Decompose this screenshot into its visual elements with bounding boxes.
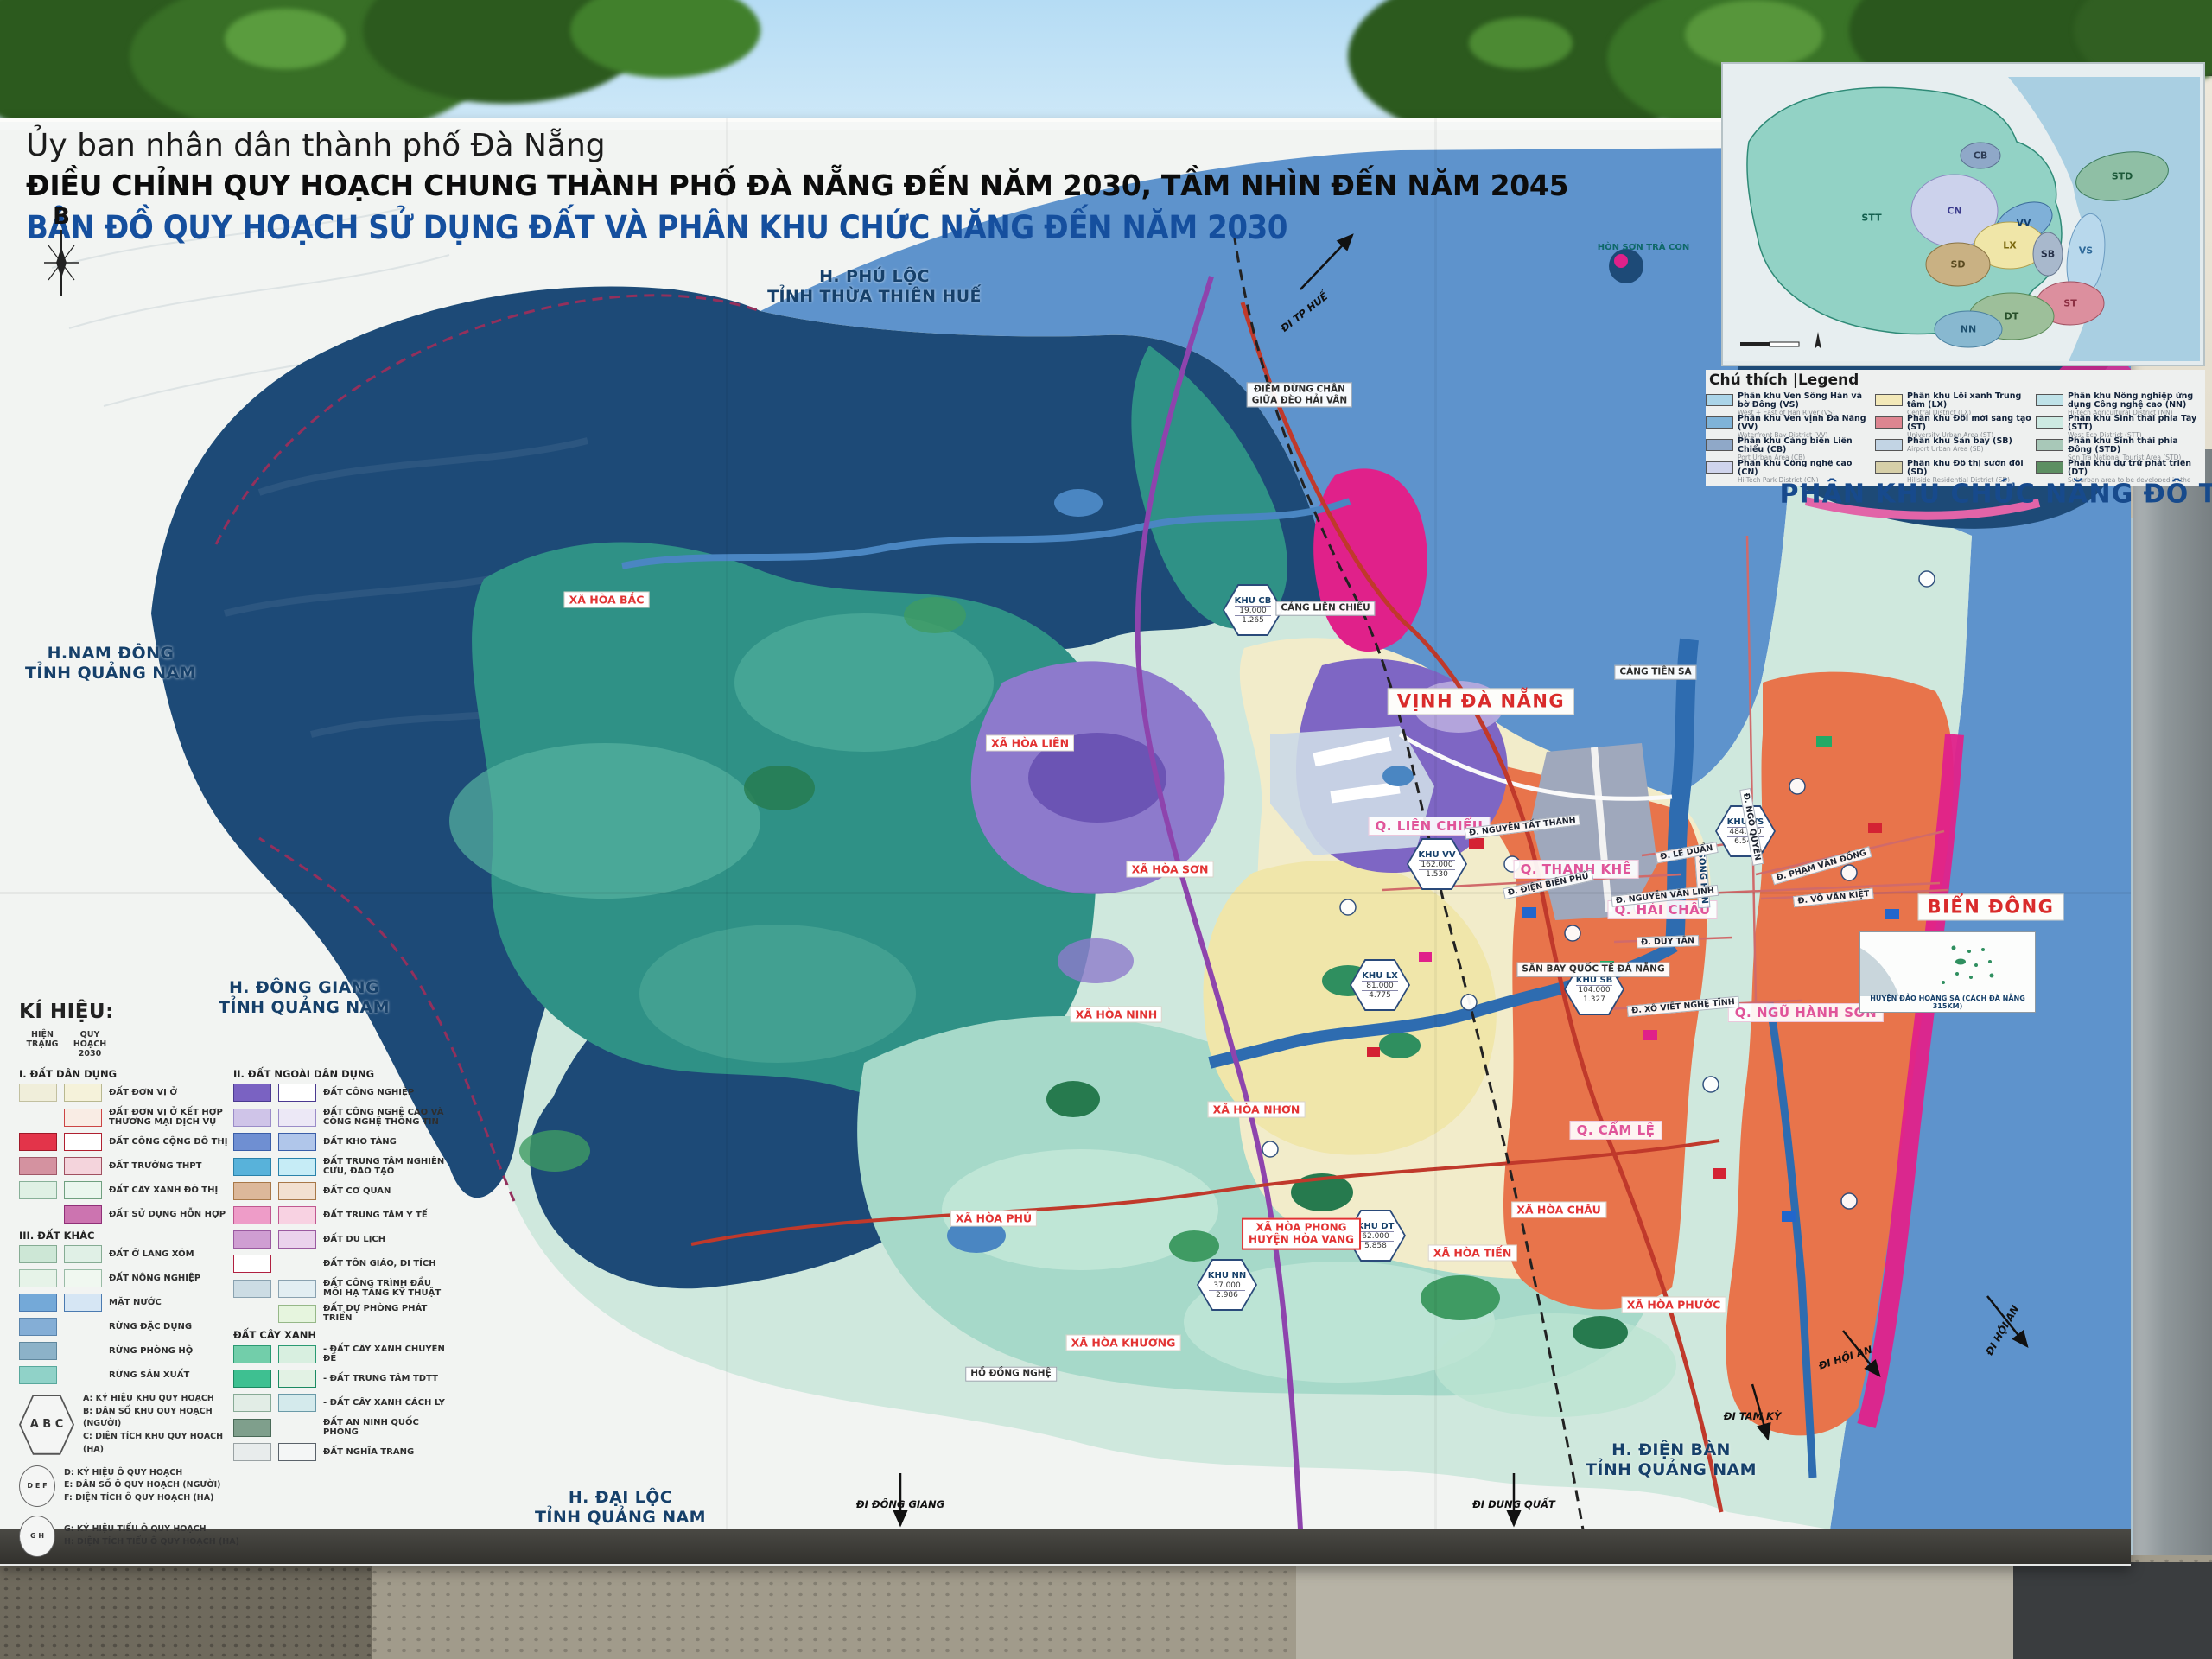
legend-row: ĐẤT DU LỊCH xyxy=(233,1230,503,1249)
swatch-existing xyxy=(233,1084,271,1102)
legend-row-label: ĐẤT ĐƠN VỊ Ở xyxy=(109,1088,238,1097)
green-patch xyxy=(519,1130,590,1172)
billboard-header: Ủy ban nhân dân thành phố Đà Nẵng ĐIỀU C… xyxy=(26,128,1568,246)
note-o-text: D: KÝ HIỆU Ô QUY HOẠCH E: DÂN SỐ Ô QUY H… xyxy=(64,1467,221,1505)
legend-row: ĐẤT AN NINH QUỐC PHÒNG xyxy=(233,1418,503,1437)
zone-area: 2.986 xyxy=(1209,1290,1245,1300)
legend-row: ĐẤT ĐƠN VỊ Ở KẾT HỢP THƯƠNG MẠI DỊCH VỤ xyxy=(19,1108,242,1127)
billboard-frame-bottom xyxy=(0,1529,2131,1564)
map-label: ĐIỂM DỪNG CHÂN GIỮA ĐÈO HẢI VÂN xyxy=(1247,382,1352,407)
legend-row-label: ĐẤT NGHĨA TRANG xyxy=(323,1447,453,1457)
legend-row: ĐẤT CÂY XANH ĐÔ THỊ xyxy=(19,1181,242,1199)
zoning-legend-label: Phân khu Đổi mới sáng tạo (ST) xyxy=(1907,415,2036,432)
legend-row: ĐẤT Ở LÀNG XÓM xyxy=(19,1245,242,1263)
hexagon-symbol: A B C xyxy=(19,1395,74,1455)
swatch-existing xyxy=(19,1269,57,1287)
section1-title: I. ĐẤT DÂN DỤNG xyxy=(19,1068,242,1080)
greenery-title: ĐẤT CÂY XANH xyxy=(233,1329,503,1341)
tree-foliage xyxy=(1469,17,1573,69)
zoning-legend-swatch xyxy=(1706,439,1733,451)
inset-region-code: ST xyxy=(2063,298,2076,309)
concrete-post xyxy=(2133,449,2212,1564)
inset-region-code: NN xyxy=(1961,324,1976,335)
teal-patch xyxy=(639,925,916,1063)
legend-row-label: ĐẤT CÔNG CỘNG ĐÔ THỊ xyxy=(109,1137,238,1147)
swatch-existing xyxy=(233,1230,271,1249)
compass-north: B xyxy=(38,204,85,299)
photo-of-planning-billboard: Ủy ban nhân dân thành phố Đà Nẵng ĐIỀU C… xyxy=(0,0,2212,1659)
legend-row: ĐẤT ĐƠN VỊ Ở xyxy=(19,1084,242,1102)
zone-population: 162.000 xyxy=(1419,860,1455,869)
legend-row-label: MẶT NƯỚC xyxy=(109,1298,238,1307)
map-label: XÃ HÒA BẮC xyxy=(564,592,650,608)
zone-population: 104.000 xyxy=(1576,985,1612,995)
map-label: H. PHÚ LỘC TỈNH THỪA THIÊN HUẾ xyxy=(767,267,982,307)
legend-row: ĐẤT NGHĨA TRANG xyxy=(233,1443,503,1461)
inset-region-code: STD xyxy=(2112,171,2133,182)
panel-seam xyxy=(726,118,728,1531)
green-patch xyxy=(904,597,966,633)
swatch-planned xyxy=(64,1084,102,1102)
greenery-rows: - ĐẤT CÂY XANH CHUYÊN ĐỀ - ĐẤT TRUNG TÂM… xyxy=(233,1344,503,1461)
plain-patch xyxy=(1434,1313,1676,1417)
green-patch xyxy=(744,766,815,810)
inset-region-code: STT xyxy=(1861,213,1881,224)
legend-row: ĐẤT CÔNG NGHIỆP xyxy=(233,1084,503,1102)
zoning-legend: Chú thích |Legend Phân khu Ven Sông Hàn … xyxy=(1706,370,2205,486)
legend-row-label: ĐẤT CÔNG TRÌNH ĐẦU MỐI HẠ TẦNG KỸ THUẬT xyxy=(323,1279,453,1298)
hoangsa-caption: HUYỆN ĐẢO HOÀNG SA (CÁCH ĐÀ NẴNG 315KM) xyxy=(1860,995,2035,1010)
legend-row-label: ĐẤT KHO TÀNG xyxy=(323,1137,453,1147)
section2-rows: ĐẤT CÔNG NGHIỆP ĐẤT CÔNG NGHỆ CAO VÀ CÔN… xyxy=(233,1084,503,1323)
legend-row-label: ĐẤT CƠ QUAN xyxy=(323,1186,453,1196)
inset-region-code: SD xyxy=(1950,259,1965,270)
inset-region-code: LX xyxy=(2003,240,2017,251)
swatch-planned xyxy=(278,1158,316,1176)
zoning-legend-item: Phân khu Sân bay (SB) Airport Urban Area… xyxy=(1875,437,2036,460)
zoning-legend-swatch xyxy=(1706,394,1733,406)
swatch-planned xyxy=(278,1305,316,1323)
note-khu-text: A: KÝ HIỆU KHU QUY HOẠCH B: DÂN SỐ KHU Q… xyxy=(83,1393,242,1457)
legend-row: RỪNG PHÒNG HỘ xyxy=(19,1342,242,1360)
zone-hexagon-inner: KHU NN 37.000 2.986 xyxy=(1198,1261,1255,1309)
swatch-planned xyxy=(278,1084,316,1102)
inset-region-code: SB xyxy=(2041,249,2055,260)
circle-symbol: G H xyxy=(19,1516,55,1557)
zoning-legend-swatch xyxy=(2036,439,2063,451)
legend-row-label: - ĐẤT CÂY XANH CHUYÊN ĐỀ xyxy=(323,1344,453,1363)
swatch-existing xyxy=(233,1419,271,1437)
ground-gravel-dark xyxy=(0,1555,372,1659)
map-label: HỒ ĐỒNG NGHỆ xyxy=(965,1367,1057,1382)
swatch-planned xyxy=(64,1205,102,1224)
legend-row-label: ĐẤT CÔNG NGHỆ CAO VÀ CÔNG NGHỆ THÔNG TIN xyxy=(323,1108,453,1127)
legend-row-label: ĐẤT AN NINH QUỐC PHÒNG xyxy=(323,1418,453,1437)
circle-symbol: D E F xyxy=(19,1465,55,1507)
teal-patch xyxy=(449,743,760,899)
legend-row-label: ĐẤT CÔNG NGHIỆP xyxy=(323,1088,453,1097)
map-label: CẢNG TIÊN SA xyxy=(1614,665,1696,680)
inset-scalebar xyxy=(1770,342,1799,346)
zoning-legend-label: Phân khu Sinh thái phía Đông (STD) xyxy=(2068,437,2205,454)
legend-row: ĐẤT NÔNG NGHIỆP xyxy=(19,1269,242,1287)
swatch-existing xyxy=(19,1181,57,1199)
swatch-existing xyxy=(233,1370,271,1388)
swatch-existing xyxy=(19,1342,57,1360)
map-label: Đ. DUY TÂN xyxy=(1637,935,1699,949)
map-label: H.NAM ĐÔNG TỈNH QUẢNG NAM xyxy=(25,644,196,683)
zoning-legend-swatch xyxy=(2036,416,2063,429)
hoangsa-artwork xyxy=(1860,932,2033,996)
zoning-legend-item: Phân khu Ven vịnh Đà Nẵng (VV) Waterfron… xyxy=(1706,415,1875,437)
legend-row-label: ĐẤT TÔN GIÁO, DI TÍCH xyxy=(323,1259,453,1268)
swatch-planned xyxy=(278,1345,316,1363)
legend-row-label: - ĐẤT TRUNG TÂM TDTT xyxy=(323,1374,453,1383)
swatch-existing xyxy=(233,1109,271,1127)
compass-star-icon xyxy=(38,230,85,296)
zoning-legend-swatch xyxy=(1875,394,1903,406)
zone-population: 37.000 xyxy=(1209,1281,1245,1290)
legend-row: - ĐẤT CÂY XANH CÁCH LY xyxy=(233,1394,503,1412)
zoning-legend-item: Phân khu Cảng biển Liên Chiểu (CB) Port … xyxy=(1706,437,1875,460)
swatch-planned xyxy=(278,1370,316,1388)
tree-foliage xyxy=(225,9,346,69)
compass-letter: B xyxy=(38,204,85,230)
teal-patch xyxy=(734,613,994,752)
functional-zones-caption: PHÂN KHU CHỨC NĂNG ĐÔ THỊ xyxy=(1780,480,2212,510)
inset-region-code: VS xyxy=(2079,245,2093,257)
map-label: XÃ HÒA PHÚ xyxy=(950,1211,1037,1227)
inset-region-code: CN xyxy=(1947,206,1961,217)
legend-row: MẶT NƯỚC xyxy=(19,1294,242,1312)
zoning-legend-swatch xyxy=(1706,461,1733,474)
map-label: ĐI ĐÔNG GIANG xyxy=(856,1499,944,1511)
legend-row-label: ĐẤT Ở LÀNG XÓM xyxy=(109,1249,238,1259)
section3-rows: ĐẤT Ở LÀNG XÓM ĐẤT NÔNG NGHIỆP MẶT NƯỚC xyxy=(19,1245,242,1384)
map-label: XÃ HÒA SƠN xyxy=(1127,861,1214,878)
zone-area: 4.775 xyxy=(1362,990,1398,1000)
inset-scalebar xyxy=(1740,342,1770,346)
swatch-existing xyxy=(19,1318,57,1336)
map-label: XÃ HÒA KHƯƠNG xyxy=(1066,1335,1181,1351)
legend-row: ĐẤT TRƯỜNG THPT xyxy=(19,1157,242,1175)
zone-area: 1.530 xyxy=(1419,869,1455,879)
zone-population: 62.000 xyxy=(1357,1231,1394,1241)
zoning-legend-label: Phân khu Ven Sông Hàn và bờ Đông (VS) xyxy=(1738,392,1875,410)
section1-rows: ĐẤT ĐƠN VỊ Ở ĐẤT ĐƠN VỊ Ở KẾT HỢP THƯƠNG… xyxy=(19,1084,242,1224)
col-planned: QUY HOẠCH 2030 xyxy=(62,1030,118,1058)
zoning-legend-item: Phân khu Sinh thái phía Đông (STD) Son T… xyxy=(2036,437,2205,460)
map-label: XÃ HÒA PHƯỚC xyxy=(1622,1297,1726,1313)
note-khu: A B C A: KÝ HIỆU KHU QUY HOẠCH B: DÂN SỐ… xyxy=(19,1393,242,1457)
legend-row: ĐẤT SỬ DỤNG HỖN HỢP xyxy=(19,1205,242,1224)
swatch-planned xyxy=(64,1133,102,1151)
zoning-legend-label: Phân khu Đô thị sườn đồi (SD) xyxy=(1907,460,2036,477)
swatch-planned xyxy=(278,1109,316,1127)
swatch-planned xyxy=(64,1269,102,1287)
map-label: XÃ HÒA TIẾN xyxy=(1428,1245,1517,1262)
bautram-lake xyxy=(1382,766,1414,786)
map-label: XÃ HÒA PHONG HUYỆN HÒA VANG xyxy=(1242,1218,1361,1250)
legend-row: - ĐẤT CÂY XANH CHUYÊN ĐỀ xyxy=(233,1344,503,1363)
legend-row: - ĐẤT TRUNG TÂM TDTT xyxy=(233,1370,503,1388)
zoning-legend-label: Phân khu Ven vịnh Đà Nẵng (VV) xyxy=(1738,415,1875,432)
legend-row-label: - ĐẤT CÂY XANH CÁCH LY xyxy=(323,1398,453,1408)
inset-region-code: CB xyxy=(1974,150,1987,162)
legend-row-label: RỪNG PHÒNG HỘ xyxy=(109,1346,238,1356)
zone-area: 1.327 xyxy=(1576,995,1612,1004)
legend-row: ĐẤT CÔNG TRÌNH ĐẦU MỐI HẠ TẦNG KỸ THUẬT xyxy=(233,1279,503,1298)
zone-hexagon-inner: KHU CB 19.000 1.265 xyxy=(1224,586,1281,634)
map-label: VỊNH ĐÀ NẴNG xyxy=(1388,688,1574,715)
zone-area: 5.858 xyxy=(1357,1241,1394,1250)
map-label: XÃ HÒA CHÂU xyxy=(1511,1202,1606,1218)
zoning-legend-swatch xyxy=(1875,461,1903,474)
landuse-col1: I. ĐẤT DÂN DỤNG ĐẤT ĐƠN VỊ Ở ĐẤT ĐƠN VỊ … xyxy=(19,1063,242,1557)
legend-row: RỪNG SẢN XUẤT xyxy=(19,1366,242,1384)
zoning-legend-swatch xyxy=(1875,439,1903,451)
legend-row: ĐẤT TRUNG TÂM NGHIÊN CỨU, ĐÀO TẠO xyxy=(233,1157,503,1176)
map-label: ĐI DUNG QUẤT xyxy=(1472,1499,1555,1511)
swatch-planned xyxy=(278,1230,316,1249)
legend-row-label: ĐẤT DỰ PHÒNG PHÁT TRIỂN xyxy=(323,1304,453,1323)
legend-row: ĐẤT TÔN GIÁO, DI TÍCH xyxy=(233,1255,503,1273)
section2-title: II. ĐẤT NGOÀI DÂN DỤNG xyxy=(233,1068,503,1080)
inset-region-code: VV xyxy=(2016,218,2031,229)
hoangsa-inset: HUYỆN ĐẢO HOÀNG SA (CÁCH ĐÀ NẴNG 315KM) xyxy=(1859,931,2036,1013)
legend-row: ĐẤT CƠ QUAN xyxy=(233,1182,503,1200)
zoning-legend-item: Phân khu Đổi mới sáng tạo (ST) Universit… xyxy=(1875,415,2036,437)
purple-patch xyxy=(1058,938,1134,983)
map-label: XÃ HÒA LIÊN xyxy=(986,735,1074,752)
zoning-legend-item: Phân khu Lõi xanh Trung tâm (LX) Central… xyxy=(1875,392,2036,415)
legend-row: ĐẤT CÔNG NGHỆ CAO VÀ CÔNG NGHỆ THÔNG TIN xyxy=(233,1108,503,1127)
map-label: SÂN BAY QUỐC TẾ ĐÀ NẴNG xyxy=(1516,963,1669,977)
zoning-legend-label: Phân khu Công nghệ cao (CN) xyxy=(1738,460,1875,477)
map-label: CẢNG LIÊN CHIỂU xyxy=(1275,601,1375,616)
green-patch xyxy=(1421,1275,1500,1320)
swatch-planned xyxy=(278,1443,316,1461)
legend-row-label: ĐẤT SỬ DỤNG HỖN HỢP xyxy=(109,1210,238,1219)
zoning-legend-swatch xyxy=(1706,416,1733,429)
map-label: XÃ HÒA NINH xyxy=(1071,1007,1162,1023)
swatch-planned xyxy=(278,1182,316,1200)
lienchieu-magenta xyxy=(1313,468,1427,652)
col-existing: HIỆN TRẠNG xyxy=(21,1030,64,1049)
swatch-existing xyxy=(233,1394,271,1412)
green-patch xyxy=(1169,1230,1219,1262)
swatch-planned xyxy=(278,1133,316,1151)
legend-row-label: RỪNG ĐẶC DỤNG xyxy=(109,1322,238,1332)
swatch-planned xyxy=(64,1109,102,1127)
issuing-authority: Ủy ban nhân dân thành phố Đà Nẵng xyxy=(26,128,1568,163)
zoning-inset-map: STTCNCBVVLXSDSBVSSTDTNNSTD xyxy=(1721,62,2205,366)
legend-row: ĐẤT DỰ PHÒNG PHÁT TRIỂN xyxy=(233,1304,503,1323)
zoning-legend-label: Phân khu Cảng biển Liên Chiểu (CB) xyxy=(1738,437,1875,454)
zoning-legend-item: Phân khu Ven Sông Hàn và bờ Đông (VS) We… xyxy=(1706,392,1875,415)
zone-hexagon-inner: KHU LX 81.000 4.775 xyxy=(1351,961,1408,1009)
legend-row-label: ĐẤT TRUNG TÂM NGHIÊN CỨU, ĐÀO TẠO xyxy=(323,1157,453,1176)
swatch-planned xyxy=(278,1394,316,1412)
zoning-legend-item: Phân khu Nông nghiệp ứng dụng Công nghệ … xyxy=(2036,392,2205,415)
hoatrung-lake xyxy=(1054,489,1103,517)
note-tieu-o-text: G: KÝ HIỆU TIỂU Ô QUY HOẠCH H: DIỆN TÍCH… xyxy=(64,1523,239,1548)
zoning-legend-title: Chú thích |Legend xyxy=(1709,372,2205,389)
green-patch xyxy=(1046,1081,1100,1117)
swatch-planned xyxy=(278,1280,316,1298)
zoning-legend-grid: Phân khu Ven Sông Hàn và bờ Đông (VS) We… xyxy=(1706,392,2205,482)
swatch-existing xyxy=(19,1084,57,1102)
islet xyxy=(1609,249,1643,283)
zone-code: KHU LX xyxy=(1351,971,1408,981)
map-label: HÒN SƠN TRÀ CON xyxy=(1598,243,1689,253)
zoning-legend-label: Phân khu Lõi xanh Trung tâm (LX) xyxy=(1907,392,2036,410)
legend-row-label: ĐẤT NÔNG NGHIỆP xyxy=(109,1274,238,1283)
legend-row: ĐẤT TRUNG TÂM Y TẾ xyxy=(233,1206,503,1224)
legend-row: ĐẤT KHO TÀNG xyxy=(233,1133,503,1151)
green-patch xyxy=(1379,1033,1421,1058)
zoning-legend-swatch xyxy=(2036,461,2063,474)
map-label: XÃ HÒA NHƠN xyxy=(1208,1102,1306,1118)
legend-row-label: ĐẤT TRƯỜNG THPT xyxy=(109,1161,238,1171)
swatch-existing xyxy=(19,1133,57,1151)
hexagon-symbol-letters: A B C xyxy=(21,1396,73,1453)
zoning-legend-label: Phân khu Sinh thái phía Tây (STT) xyxy=(2068,415,2205,432)
landuse-legend: KÍ HIỆU: HIỆN TRẠNG QUY HOẠCH 2030 I. ĐẤ… xyxy=(19,1001,503,1023)
note-o: D E F D: KÝ HIỆU Ô QUY HOẠCH E: DÂN SỐ Ô… xyxy=(19,1465,242,1507)
zone-area: 1.265 xyxy=(1235,615,1271,625)
green-patch xyxy=(1573,1316,1628,1349)
zone-code: KHU NN xyxy=(1198,1271,1255,1281)
swatch-existing xyxy=(19,1245,57,1263)
zoning-legend-swatch xyxy=(1875,416,1903,429)
note-tieu-o: G H G: KÝ HIỆU TIỂU Ô QUY HOẠCH H: DIỆN … xyxy=(19,1516,242,1557)
swatch-existing xyxy=(233,1182,271,1200)
zone-population: 19.000 xyxy=(1235,606,1271,615)
ground-concrete xyxy=(1296,1555,2039,1659)
legend-row-label: ĐẤT CÂY XANH ĐÔ THỊ xyxy=(109,1185,238,1195)
swatch-planned xyxy=(64,1181,102,1199)
swatch-existing xyxy=(19,1157,57,1175)
legend-row-label: ĐẤT ĐƠN VỊ Ở KẾT HỢP THƯƠNG MẠI DỊCH VỤ xyxy=(109,1108,238,1127)
zone-code: KHU VV xyxy=(1408,850,1465,860)
swatch-planned xyxy=(278,1206,316,1224)
zone-hexagon-inner: KHU VV 162.000 1.530 xyxy=(1408,840,1465,888)
islet-dot xyxy=(1614,254,1628,268)
swatch-existing xyxy=(19,1366,57,1384)
swatch-existing xyxy=(233,1443,271,1461)
swatch-existing xyxy=(19,1294,57,1312)
swatch-planned xyxy=(64,1294,102,1312)
swatch-existing xyxy=(233,1345,271,1363)
zoning-legend-item: Phân khu Sinh thái phía Tây (STT) West E… xyxy=(2036,415,2205,437)
legend-row-label: ĐẤT TRUNG TÂM Y TẾ xyxy=(323,1211,453,1220)
swatch-existing xyxy=(233,1280,271,1298)
swatch-planned xyxy=(64,1157,102,1175)
legend-row-label: ĐẤT DU LỊCH xyxy=(323,1235,453,1244)
zoning-legend-sublabel: Airport Urban Area (SB) xyxy=(1907,446,2012,453)
zoning-legend-swatch xyxy=(2036,394,2063,406)
landuse-legend-title: KÍ HIỆU: xyxy=(19,1001,503,1023)
map-label: ĐI TAM KỲ xyxy=(1724,1411,1782,1423)
map-label: BIỂN ĐÔNG xyxy=(1918,893,2064,920)
tree-foliage xyxy=(1685,0,1823,69)
zoning-legend-label: Phân khu Nông nghiệp ứng dụng Công nghệ … xyxy=(2068,392,2205,410)
inset-region-code: DT xyxy=(2005,311,2019,322)
legend-row: ĐẤT CÔNG CỘNG ĐÔ THỊ xyxy=(19,1133,242,1151)
map-label: Q. CẨM LỆ xyxy=(1570,1121,1662,1140)
zoning-legend-label: Phân khu dự trữ phát triển (DT) xyxy=(2068,460,2205,477)
landuse-col2: II. ĐẤT NGOÀI DÂN DỤNG ĐẤT CÔNG NGHIỆP Đ… xyxy=(233,1063,503,1467)
map-label: H. ĐIỆN BÀN TỈNH QUẢNG NAM xyxy=(1586,1440,1757,1480)
ground-shadow-corner xyxy=(2013,1562,2212,1659)
section3-title: III. ĐẤT KHÁC xyxy=(19,1230,242,1242)
legend-row: RỪNG ĐẶC DỤNG xyxy=(19,1318,242,1336)
swatch-existing xyxy=(233,1133,271,1151)
swatch-planned xyxy=(64,1245,102,1263)
swatch-existing xyxy=(233,1206,271,1224)
map-title: BẢN ĐỒ QUY HOẠCH SỬ DỤNG ĐẤT VÀ PHÂN KHU… xyxy=(26,209,1445,246)
swatch-existing xyxy=(233,1255,271,1273)
zone-population: 81.000 xyxy=(1362,981,1398,990)
legend-row-label: RỪNG SẢN XUẤT xyxy=(109,1370,238,1380)
zone-code: KHU CB xyxy=(1224,596,1281,606)
swatch-existing xyxy=(233,1158,271,1176)
plan-title: ĐIỀU CHỈNH QUY HOẠCH CHUNG THÀNH PHỐ ĐÀ … xyxy=(26,168,1568,202)
map-label: H. ĐẠI LỘC TỈNH QUẢNG NAM xyxy=(535,1488,706,1528)
